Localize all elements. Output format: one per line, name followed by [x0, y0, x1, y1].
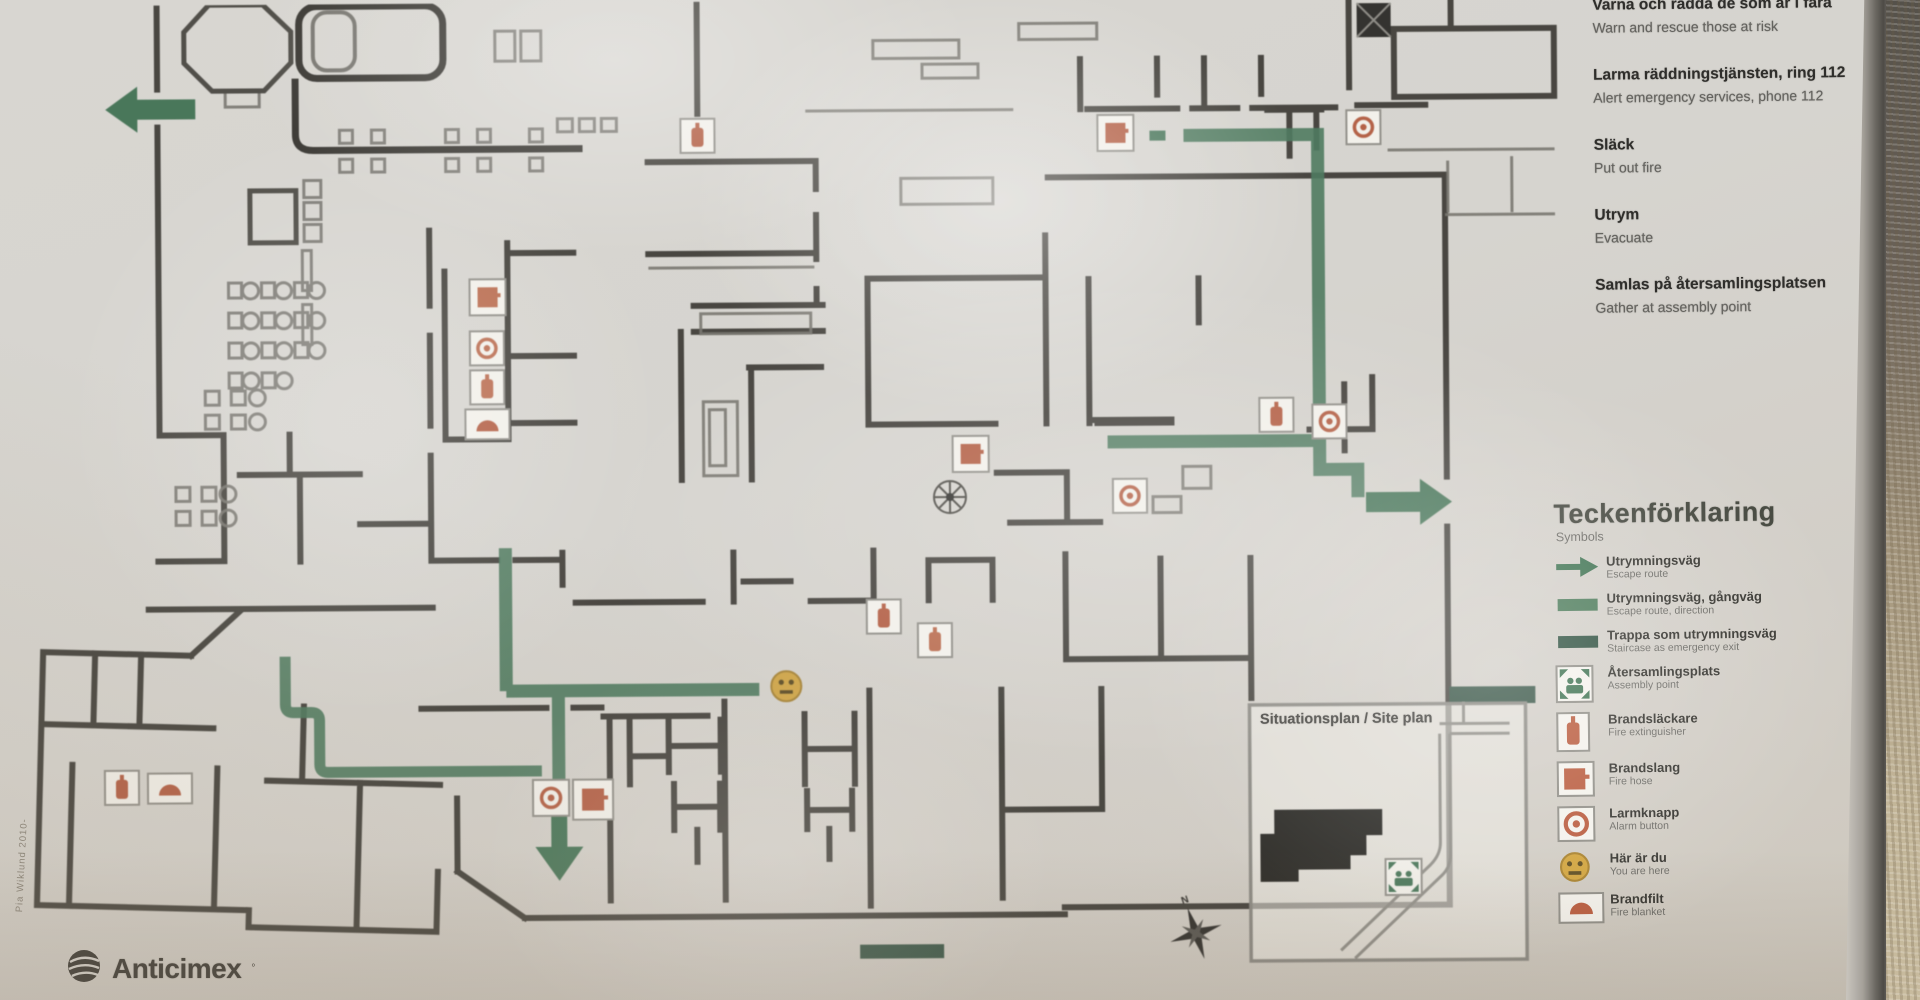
alarm-button-icon	[1557, 806, 1609, 843]
fire-blanket-icon	[1558, 892, 1610, 925]
compass-rose: N	[1158, 887, 1230, 968]
stair-escape-run	[1449, 686, 1535, 704]
you-are-here-icon	[1558, 851, 1610, 884]
assembly-point-icon	[1386, 859, 1422, 895]
brand-logo: Anticimex°	[66, 948, 255, 989]
canteen-chairs	[173, 118, 619, 526]
escape-route-path	[1105, 134, 1358, 499]
escape-routes	[281, 134, 1360, 828]
fire-extinguisher-icon	[1556, 712, 1608, 753]
background-wall	[1886, 0, 1920, 1000]
anticimex-globe-icon	[66, 948, 102, 989]
exit-arrow-right	[1366, 479, 1452, 526]
brand-name: Anticimex	[112, 953, 241, 985]
tank-octagon	[184, 5, 292, 92]
escape-route-walkway-icon	[1554, 591, 1606, 618]
trademark-mark: °	[251, 963, 255, 974]
site-plan-title: Situationsplan / Site plan	[1260, 710, 1433, 728]
evacuation-plan-photo: N Varna och rädda de som är i fara Warn …	[0, 0, 1920, 1000]
stair-escape-run	[860, 944, 944, 959]
kitchen-equipment	[184, 3, 584, 244]
stair-escape-icon	[1555, 628, 1607, 655]
walls-thin	[173, 20, 1557, 527]
exit-arrow-left	[105, 86, 195, 133]
spiral-stair-icon	[934, 481, 966, 513]
fire-extinguisher-icons	[100, 115, 1296, 805]
site-plan-inset	[1249, 701, 1527, 961]
you-are-here-marker	[771, 671, 801, 701]
route-tick	[1149, 131, 1165, 141]
fire-hose-icon	[1557, 761, 1609, 798]
assembly-point-icon	[1555, 665, 1607, 704]
escape-route-arrow-icon	[1554, 554, 1606, 581]
alarm-button-icons	[468, 110, 1385, 816]
